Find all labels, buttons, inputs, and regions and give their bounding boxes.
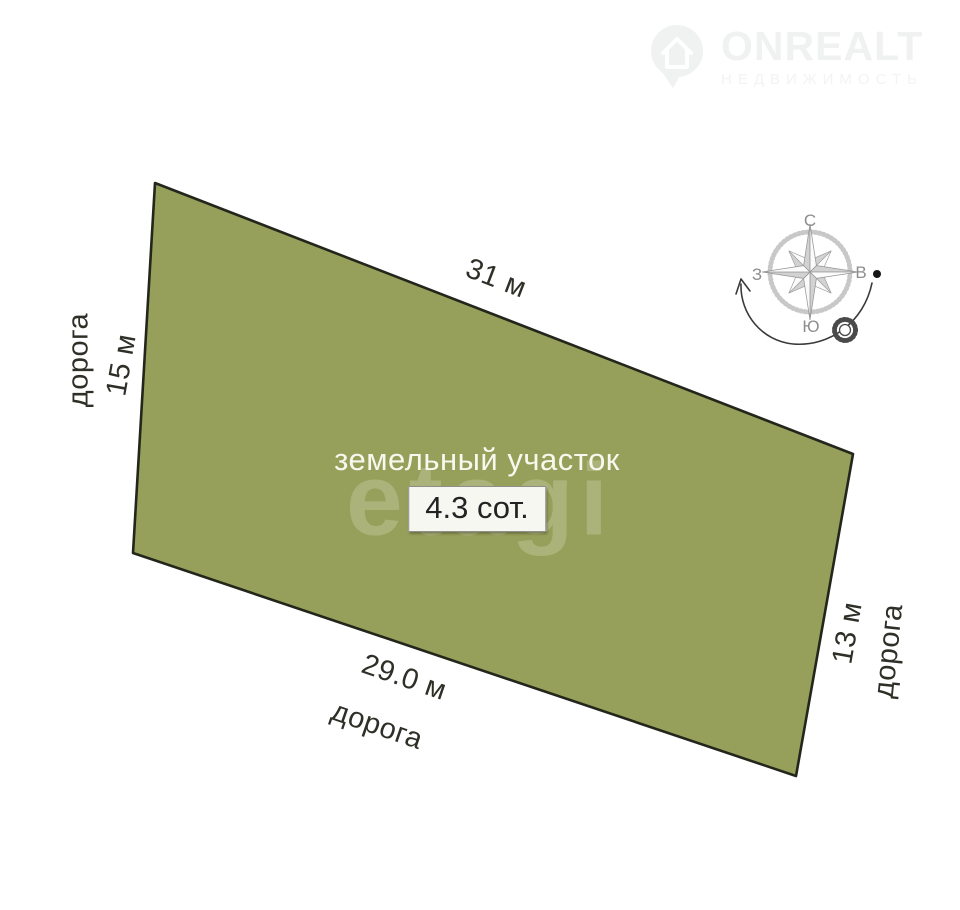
onrealt-pin-house-icon [645,22,709,90]
logo-tagline-text: НЕДВИЖИМОСТЬ [721,71,923,88]
compass-east-label: В [855,263,866,283]
compass-west-label: З [752,265,762,285]
sun-path-arrowhead [736,279,750,294]
land-plot-diagram: etagi земельный участок 4.3 сот. 31 м 15… [0,0,960,910]
road-label-left: дорога [63,313,96,407]
compass-north-label: С [804,211,816,231]
plot-title: земельный участок [334,442,620,478]
logo-brand-text: ONREALT [721,26,923,67]
compass-major-points [762,224,858,320]
compass-south-label: Ю [802,317,819,337]
sun-path-start-dot [873,270,881,278]
area-badge: 4.3 сот. [408,486,546,532]
sun-icon [835,320,856,341]
onrealt-logo: ONREALT НЕДВИЖИМОСТЬ [645,22,950,94]
